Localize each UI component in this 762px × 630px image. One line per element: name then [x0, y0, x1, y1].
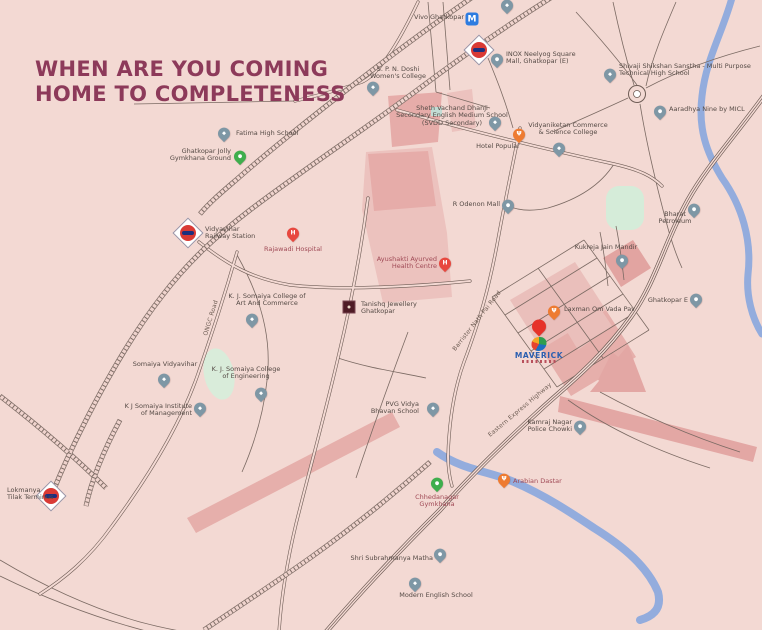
label-inox-neelyog-square-mall: INOX Neelyog SquareMall, Ghatkopar (E) [506, 51, 576, 66]
label-ghatkopar-jolly-gymkhana-ground: Ghatkopar JollyGymkhana Ground [170, 148, 231, 163]
label-kj-somaiya-art-commerce: K. J. Somaiya College ofArt And Commerce [228, 293, 305, 308]
school-pin-icon: ◆ [407, 575, 424, 592]
label-shivaji-shikshan-sanstha: Shivaji Shikshan Sanstha - Multi Purpose… [619, 63, 751, 78]
school-pin-icon: ◆ [192, 400, 209, 417]
food-pin-icon: Ψ [511, 126, 528, 143]
food-pin-icon: Ψ [546, 303, 563, 320]
green-pin-icon: ● [429, 475, 446, 492]
mall-pin-icon: ● [500, 197, 517, 214]
police-pin-icon: ● [572, 418, 589, 435]
place-pin-icon: ● [614, 252, 631, 269]
label-pvg-vidya-bhavan-school: PVG VidyaBhavan School [371, 401, 419, 416]
place-pin-icon: ● [652, 103, 669, 120]
hospital-pin-icon: H [285, 225, 302, 242]
label-rajawadi-hospital: Rajawadi Hospital [264, 246, 322, 253]
school-pin-icon: ◆ [425, 400, 442, 417]
maverick-logo [532, 337, 547, 351]
school-pin-icon: ◆ [365, 79, 382, 96]
school-pin-icon: ◆ [216, 125, 233, 142]
tanishq-store-icon [343, 301, 356, 314]
label-sheth-svdd-school: Sheth Vachand DhanjiSecondary English Me… [396, 105, 508, 127]
mall-pin-icon: ● [489, 51, 506, 68]
school-pin-icon: ◆ [253, 385, 270, 402]
maverick-logo-tagline [522, 360, 556, 363]
label-vidyaniketan-college: Vidyaniketan Commerce& Science College [528, 122, 608, 137]
hospital-pin-icon: H [437, 255, 454, 272]
headline-line2: HOME TO COMPLETENESS [35, 82, 346, 107]
label-vivo-ghatkopar-metro: Vivo Ghatkopar [414, 14, 464, 21]
label-lokmanya-tilak-terminus: LokmanyaTilak Terminus [7, 487, 53, 502]
label-kamraj-nagar-police-chowki: Kamraj NagarPolice Chowki [527, 419, 572, 434]
label-kukreja-jain-mandir: Kukreja Jain Mandir [575, 244, 637, 251]
label-shri-subrahmanya-matha: Shri Subrahmanya Matha [350, 555, 433, 562]
label-chhedanagar-gymkhana: ChhedanagarGymkhana [415, 494, 459, 509]
label-ayushakti-ayurved-health-centre: Ayushakti AyurvedHealth Centre [377, 256, 437, 271]
railway-station-icon [172, 217, 203, 248]
location-map-canvas: WHEN ARE YOU COMING HOME TO COMPLETENESS… [0, 0, 762, 630]
label-aaradhya-nine-by-micl: Aaradhya Nine by MICL [669, 106, 745, 113]
label-modern-english-school: Modern English School [399, 592, 473, 599]
label-kj-somaiya-engineering: K. J. Somaiya Collegeof Engineering [212, 366, 281, 381]
label-arabian-dastar: Arabian Dastar [513, 478, 562, 485]
maverick-project-name: MAVERICK [515, 351, 563, 360]
road-label-barrister-nath-pai-road: Barrister Nath Pai Road [451, 290, 502, 353]
label-spn-doshi-womens-college: S. P. N. DoshiWomen's College [370, 66, 426, 81]
food-pin-icon: Ψ [496, 471, 513, 488]
label-somaiya-vidyavihar: Somaiya Vidyavihar [133, 361, 198, 368]
school-pin-icon: ◆ [551, 140, 568, 157]
label-ghatkopar-e: Ghatkopar E [648, 297, 688, 304]
metro-station-icon: M [466, 13, 479, 26]
label-r-odenon-mall: R Odenon Mall [453, 201, 500, 208]
school-pin-icon: ◆ [156, 371, 173, 388]
headline-line1: WHEN ARE YOU COMING [35, 57, 346, 82]
headline: WHEN ARE YOU COMING HOME TO COMPLETENESS [35, 57, 346, 107]
label-hotel-popular: Hotel Popular [476, 143, 520, 150]
maverick-location-pin-icon [529, 317, 549, 337]
label-bharat-petroleum: BharatPetroleum [659, 211, 692, 226]
label-fatima-high-school: Fatima High School [236, 130, 298, 137]
label-laxman-om-vada-pav: Laxman Om Vada Pav [564, 306, 635, 313]
label-tanishq-jewellery-ghatkopar: Tanishq JewelleryGhatkopar [361, 301, 417, 316]
green-pin-icon: ● [232, 148, 249, 165]
place-pin-icon: ● [688, 291, 705, 308]
road-label-ongc-road: ONGC Road [202, 299, 219, 336]
school-pin-icon: ◆ [244, 311, 261, 328]
school-pin-icon: ◆ [499, 0, 516, 14]
school-pin-icon: ◆ [602, 66, 619, 83]
label-kj-somaiya-management: K J Somaiya Instituteof Management [125, 403, 192, 418]
place-pin-icon: ● [432, 546, 449, 563]
label-vidyavihar-railway-station: VidyaviharRailway Station [205, 226, 255, 241]
